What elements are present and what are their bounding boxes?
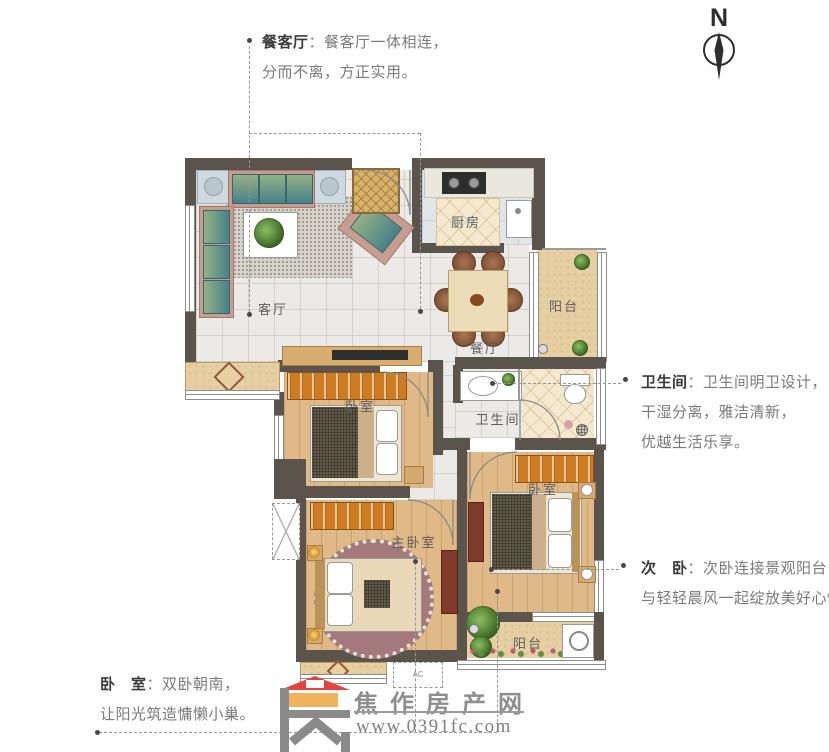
washing-machine-drum xyxy=(569,631,589,651)
floor-drain-icon xyxy=(538,344,548,354)
north-label: N xyxy=(710,4,728,32)
master-lamp xyxy=(308,629,320,641)
annotation-bedrooms: 卧 室：双卧朝南， 让阳光筑造慵懒小巢。 xyxy=(100,670,255,730)
bathroom-partition xyxy=(518,369,520,401)
leader-second-bedroom xyxy=(492,569,619,570)
sofa-cushion xyxy=(259,174,286,204)
wall-right-corner xyxy=(594,612,604,660)
end-table-lamp-left xyxy=(204,177,223,196)
bedroom1-pillow xyxy=(376,443,398,475)
bathroom-window xyxy=(596,368,606,445)
wall-dining-bathroom xyxy=(455,357,606,369)
leader-dot xyxy=(247,312,252,317)
sofa-cushion xyxy=(286,174,313,204)
logo-chevron xyxy=(292,722,340,742)
annotation-bathroom: 卫生间：卫生间明卫设计， 干湿分离，雅洁清新， 优越生活乐享。 xyxy=(641,368,827,458)
room-label-bedroom2: 卧室 xyxy=(507,479,579,498)
master-dresser xyxy=(441,550,458,614)
leader-dot xyxy=(413,559,418,564)
toilet-bowl xyxy=(564,384,586,404)
watermark-url: www.0391fc.com xyxy=(356,716,512,738)
bedroom2-lamp xyxy=(581,484,593,496)
bedroom2-pillow xyxy=(548,534,572,568)
teapot xyxy=(470,294,484,306)
annotation-label: 餐客厅 xyxy=(262,34,309,51)
room-label-master: 主卧室 xyxy=(378,532,450,551)
balcony-bottom-slider xyxy=(532,612,596,622)
kitchen-faucet xyxy=(515,208,521,214)
leader-dot xyxy=(95,730,100,735)
stove xyxy=(442,172,486,194)
balcony-plant xyxy=(572,340,588,356)
bathroom-sink xyxy=(468,376,498,396)
north-compass: N xyxy=(694,2,744,90)
watermark-rule xyxy=(354,711,524,713)
room-label-bathroom: 卫生间 xyxy=(462,409,534,428)
bedroom2-pillow xyxy=(548,498,572,532)
annotation-bullet xyxy=(623,377,628,382)
master-quilt xyxy=(364,580,390,608)
wall-bathroom-bottom-right xyxy=(515,438,606,450)
kitchen-sink xyxy=(506,200,532,238)
annotation-line: 分而不离，方正实用。 xyxy=(262,58,448,88)
bedroom1-blanket xyxy=(312,407,360,478)
wall-right-upper xyxy=(594,443,604,560)
coffee-table-plant xyxy=(254,218,284,248)
room-label-dining: 餐厅 xyxy=(449,338,521,357)
bedroom2-blanket xyxy=(492,494,532,570)
bedroom1-window xyxy=(274,415,284,462)
shower-head-icon xyxy=(564,420,573,429)
annotation-bullet xyxy=(621,563,626,568)
wall-top-left xyxy=(185,158,352,170)
sofa-cushion xyxy=(232,174,259,204)
bedroom1-nightstand xyxy=(404,466,424,484)
leader-dining-living-h xyxy=(249,133,420,134)
sofa-cushion xyxy=(203,280,230,314)
shower-drain-icon xyxy=(576,424,588,436)
annotation-line: 优越生活乐享。 xyxy=(641,428,827,458)
leader-dot xyxy=(489,567,494,572)
annotation-label: 卫生间 xyxy=(641,374,688,391)
end-table-lamp-right xyxy=(320,177,339,196)
annotation-line: 卫生间：卫生间明卫设计， xyxy=(641,368,827,398)
wall-bedroom1-right xyxy=(433,365,443,455)
logo-stroke xyxy=(280,688,289,752)
annotation-second-bedroom: 次 卧：次卧连接景观阳台， 与轻轻晨风一起绽放美好心情。 xyxy=(641,554,829,614)
annotation-line: 次 卧：次卧连接景观阳台， xyxy=(641,554,829,584)
logo-roof-window xyxy=(306,680,324,688)
logo-stroke xyxy=(280,710,350,718)
leader-dot xyxy=(490,381,495,386)
balcony-bottom-window xyxy=(457,660,606,670)
bedroom2-headboard xyxy=(572,492,580,572)
annotation-label: 次 卧 xyxy=(641,560,688,577)
annotation-line: 卧 室：双卧朝南， xyxy=(100,670,255,700)
floor-drain-icon xyxy=(469,624,479,634)
room-label-kitchen: 厨房 xyxy=(430,212,502,231)
ac-platform-left xyxy=(272,503,300,560)
annotation-line: 餐客厅：餐客厅一体相连， xyxy=(262,28,448,58)
annotation-label: 卧 室 xyxy=(100,676,147,693)
leader-dining-living-v1 xyxy=(249,46,250,312)
balcony-top-edge-line xyxy=(542,248,606,250)
logo-orange-bar xyxy=(288,693,338,707)
bedroom2-dresser xyxy=(468,502,484,562)
annotation-line: 让阳光筑造慵懒小巢。 xyxy=(100,700,255,730)
annotation-dining-living: 餐客厅：餐客厅一体相连， 分而不离，方正实用。 xyxy=(262,28,448,88)
leader-dot xyxy=(418,309,423,314)
room-label-balcony-top: 阳台 xyxy=(528,296,600,315)
leader-bathroom xyxy=(493,383,621,384)
master-lamp xyxy=(308,546,320,558)
master-pillow xyxy=(327,562,353,594)
sofa-cushion xyxy=(203,210,230,244)
annotation-line: 干湿分离，雅洁清新， xyxy=(641,398,827,428)
master-wardrobe xyxy=(310,502,394,530)
leader-dining-living-v2 xyxy=(420,133,421,309)
room-label-balcony-bottom: 阳台 xyxy=(492,633,564,652)
watermark-site-name: 焦作房产网 xyxy=(354,684,534,719)
master-headboard xyxy=(315,558,325,630)
site-logo xyxy=(280,676,352,752)
master-pillow xyxy=(327,594,353,626)
tv xyxy=(332,350,408,360)
leader-dot xyxy=(495,589,500,594)
room-label-bedroom1: 卧室 xyxy=(324,396,396,415)
floorplan-image: AC xyxy=(0,0,829,752)
bedroom2-bed-runner xyxy=(532,494,546,570)
annotation-line: 与轻轻晨风一起绽放美好心情。 xyxy=(641,584,829,614)
sofa-cushion xyxy=(203,245,230,279)
leader-dot xyxy=(247,38,252,43)
living-window xyxy=(185,205,195,312)
entry-door-mat xyxy=(352,168,400,214)
balcony-plant xyxy=(574,254,590,270)
bathroom-plant xyxy=(502,373,515,386)
bedroom1-bed-runner xyxy=(358,407,374,478)
logo-stroke xyxy=(341,732,350,752)
living-bay-window xyxy=(185,390,280,400)
